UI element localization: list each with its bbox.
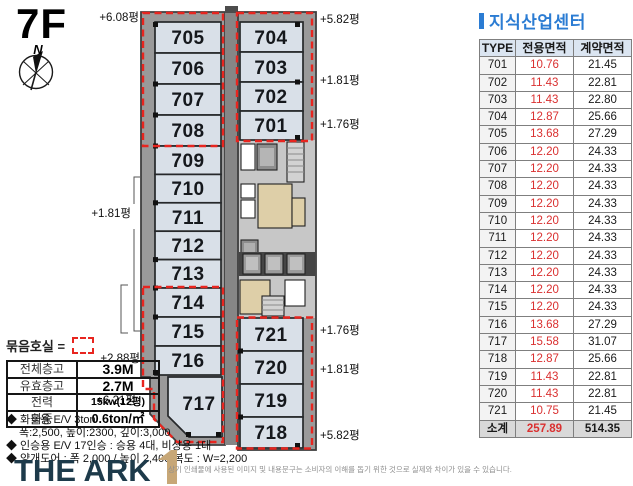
cell-type: 712 <box>480 247 516 264</box>
unit-711-label: 711 <box>172 208 204 229</box>
title-bar-icon <box>479 13 484 29</box>
table-row: 70412.8725.66 <box>480 109 632 126</box>
table-row: 71715.5831.07 <box>480 334 632 351</box>
cell-contract: 25.66 <box>574 109 632 126</box>
header-exclusive-area: 전용면적 <box>516 40 574 57</box>
elevator-car <box>260 148 274 166</box>
cell-exclusive: 13.68 <box>516 316 574 333</box>
cell-type: 717 <box>480 334 516 351</box>
cell-type: 707 <box>480 161 516 178</box>
page: 7F N <box>0 0 633 486</box>
cell-exclusive: 13.68 <box>516 126 574 143</box>
legend-label: 묶음호실 = <box>6 336 65 355</box>
floor-label: 7F <box>16 0 67 48</box>
spec-row: 전체층고3.9M <box>7 361 159 378</box>
cell-exclusive: 12.20 <box>516 178 574 195</box>
compass-icon: N <box>20 42 53 90</box>
spec-value: 3.9M <box>77 361 159 378</box>
annotation-right-3: +1.76평 <box>320 324 360 337</box>
annotation-left-1: +1.81평 <box>91 207 131 220</box>
table-row: 70110.7621.45 <box>480 57 632 74</box>
cell-type: 719 <box>480 368 516 385</box>
annotation-right-1: +1.81평 <box>320 74 360 87</box>
cell-exclusive: 11.43 <box>516 91 574 108</box>
table-row: 71812.8725.66 <box>480 351 632 368</box>
table-row: 71112.2024.33 <box>480 230 632 247</box>
total-exclusive: 257.89 <box>516 420 574 437</box>
annotation-left-0: +6.08평 <box>99 11 139 24</box>
header-type: TYPE <box>480 40 516 57</box>
core-room <box>241 184 255 198</box>
total-label: 소계 <box>480 420 516 437</box>
restroom <box>292 198 305 226</box>
unit-714-label: 714 <box>171 293 204 314</box>
cell-contract: 24.33 <box>574 282 632 299</box>
cell-type: 709 <box>480 195 516 212</box>
elevator-car <box>268 257 280 270</box>
table-row: 70311.4322.80 <box>480 91 632 108</box>
cell-contract: 24.33 <box>574 247 632 264</box>
table-row: 71412.2024.33 <box>480 282 632 299</box>
unit-706-label: 706 <box>171 59 204 80</box>
brand-name: THE ARK <box>14 456 151 486</box>
dashed-box-icon <box>72 337 94 354</box>
unit-701-label: 701 <box>254 116 287 137</box>
table-row: 70513.6827.29 <box>480 126 632 143</box>
cell-contract: 24.33 <box>574 212 632 229</box>
cell-contract: 24.33 <box>574 178 632 195</box>
core-room <box>285 280 305 306</box>
unit-cells-left <box>155 22 222 437</box>
unit-709-label: 709 <box>171 151 204 172</box>
spec-value: 2.7M <box>77 378 159 395</box>
cell-contract: 27.29 <box>574 316 632 333</box>
unit-703-label: 703 <box>254 58 287 79</box>
panel-title: 지식산업센터 <box>479 8 631 33</box>
cell-contract: 25.66 <box>574 351 632 368</box>
spec-row: 유효층고2.7M <box>7 378 159 395</box>
cell-exclusive: 12.87 <box>516 351 574 368</box>
cell-exclusive: 12.20 <box>516 143 574 160</box>
cell-contract: 21.45 <box>574 403 632 420</box>
core-room <box>241 200 255 218</box>
cell-contract: 24.33 <box>574 161 632 178</box>
cell-type: 702 <box>480 74 516 91</box>
table-row: 70712.2024.33 <box>480 161 632 178</box>
cell-exclusive: 12.20 <box>516 230 574 247</box>
unit-702-label: 702 <box>254 87 287 108</box>
cell-exclusive: 12.20 <box>516 161 574 178</box>
cell-type: 713 <box>480 264 516 281</box>
cell-type: 716 <box>480 316 516 333</box>
cell-type: 711 <box>480 230 516 247</box>
unit-718-label: 718 <box>254 423 287 444</box>
unit-720-label: 720 <box>254 358 287 379</box>
cell-exclusive: 11.43 <box>516 385 574 402</box>
cell-contract: 31.07 <box>574 334 632 351</box>
spec-label: 전체층고 <box>7 361 77 378</box>
unit-708-label: 708 <box>171 121 204 142</box>
cell-exclusive: 12.20 <box>516 212 574 229</box>
table-row: 71613.6827.29 <box>480 316 632 333</box>
unit-705-label: 705 <box>171 28 204 49</box>
cell-contract: 22.81 <box>574 385 632 402</box>
unit-707-label: 707 <box>171 90 204 111</box>
unit-713-label: 713 <box>171 264 204 285</box>
table-row: 72110.7521.45 <box>480 403 632 420</box>
table-row: 70812.2024.33 <box>480 178 632 195</box>
cell-contract: 22.81 <box>574 368 632 385</box>
cell-exclusive: 10.76 <box>516 57 574 74</box>
total-row: 소계 257.89 514.35 <box>480 420 632 437</box>
table-row: 72011.4322.81 <box>480 385 632 402</box>
unit-721-label: 721 <box>254 325 287 346</box>
cell-contract: 24.33 <box>574 264 632 281</box>
unit-710-label: 710 <box>171 179 204 200</box>
cell-type: 706 <box>480 143 516 160</box>
note-line: 폭:2,500, 높이:2300, 깊이:3,000 <box>19 427 247 440</box>
area-panel: 지식산업센터 TYPE 전용면적 계약면적 70110.7621.45 7021… <box>479 8 631 438</box>
elevator-car <box>246 257 258 270</box>
unit-712-label: 712 <box>171 236 204 257</box>
cell-contract: 27.29 <box>574 126 632 143</box>
cell-exclusive: 10.75 <box>516 403 574 420</box>
spec-label: 전력 <box>7 394 77 411</box>
cell-exclusive: 12.87 <box>516 109 574 126</box>
area-table: TYPE 전용면적 계약면적 70110.7621.45 70211.4322.… <box>479 39 632 438</box>
cell-type: 710 <box>480 212 516 229</box>
cell-contract: 24.33 <box>574 230 632 247</box>
header-contract-area: 계약면적 <box>574 40 632 57</box>
unit-715-label: 715 <box>171 322 204 343</box>
cell-exclusive: 12.20 <box>516 299 574 316</box>
cell-contract: 22.80 <box>574 91 632 108</box>
table-row: 71512.2024.33 <box>480 299 632 316</box>
cell-type: 714 <box>480 282 516 299</box>
table-row: 70612.2024.33 <box>480 143 632 160</box>
table-row: 71012.2024.33 <box>480 212 632 229</box>
disclaimer-text: 상기 인쇄물에 사용된 이미지 및 내용문구는 소비자의 이해를 돕기 위한 것… <box>168 464 512 475</box>
table-row: 71312.2024.33 <box>480 264 632 281</box>
annotation-right-5: +5.82평 <box>320 429 360 442</box>
cell-type: 721 <box>480 403 516 420</box>
dimension-brackets <box>121 177 141 333</box>
annotation-right-2: +1.76평 <box>320 118 360 131</box>
note-line: ◆ 인승용 E/V 17인승 : 승용 4대, 비상용 1대 <box>6 440 247 453</box>
cell-type: 704 <box>480 109 516 126</box>
table-row: 70211.4322.81 <box>480 74 632 91</box>
cell-contract: 24.33 <box>574 143 632 160</box>
cell-type: 718 <box>480 351 516 368</box>
core-room <box>241 144 255 170</box>
cell-exclusive: 11.43 <box>516 74 574 91</box>
stairs <box>262 296 284 316</box>
table-row: 70912.2024.33 <box>480 195 632 212</box>
cell-exclusive: 11.43 <box>516 368 574 385</box>
annotation-right-4: +1.81평 <box>320 363 360 376</box>
cell-contract: 24.33 <box>574 195 632 212</box>
spec-value: 15kw(12평) <box>77 394 159 411</box>
grouping-legend: 묶음호실 = <box>6 336 160 355</box>
table-row: 71911.4322.81 <box>480 368 632 385</box>
cell-type: 708 <box>480 178 516 195</box>
unit-717-label: 717 <box>182 394 215 415</box>
cell-type: 705 <box>480 126 516 143</box>
spec-label: 유효층고 <box>7 378 77 395</box>
brand-logo: THE ARK <box>14 456 181 486</box>
spec-row: 전력15kw(12평) <box>7 394 159 411</box>
table-row: 71212.2024.33 <box>480 247 632 264</box>
note-line: ◆ 화물용 E/V 3ton <box>6 414 247 427</box>
cell-contract: 24.33 <box>574 299 632 316</box>
cell-type: 720 <box>480 385 516 402</box>
header-row: TYPE 전용면적 계약면적 <box>480 40 632 57</box>
cell-contract: 21.45 <box>574 57 632 74</box>
cell-exclusive: 15.58 <box>516 334 574 351</box>
cell-exclusive: 12.20 <box>516 247 574 264</box>
panel-title-text: 지식산업센터 <box>489 8 586 33</box>
building-core <box>239 140 315 318</box>
cell-exclusive: 12.20 <box>516 195 574 212</box>
cell-type: 703 <box>480 91 516 108</box>
cell-type: 701 <box>480 57 516 74</box>
unit-719-label: 719 <box>254 391 287 412</box>
unit-704-label: 704 <box>254 28 287 49</box>
elevator-car <box>290 257 302 270</box>
unit-716-label: 716 <box>171 351 204 372</box>
total-contract: 514.35 <box>574 420 632 437</box>
cell-exclusive: 12.20 <box>516 264 574 281</box>
cell-contract: 22.81 <box>574 74 632 91</box>
restroom <box>258 184 292 228</box>
annotation-right-0: +5.82평 <box>320 13 360 26</box>
cell-exclusive: 12.20 <box>516 282 574 299</box>
cell-type: 715 <box>480 299 516 316</box>
